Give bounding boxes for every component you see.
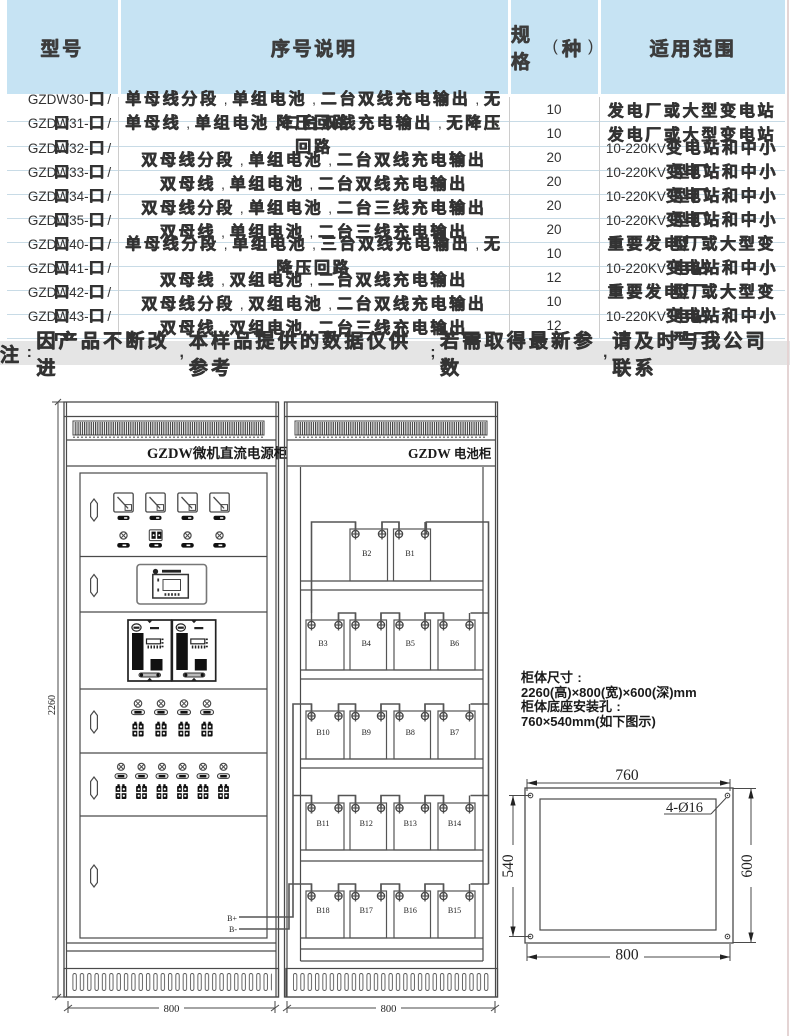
- svg-text:600: 600: [739, 854, 756, 878]
- svg-text:540: 540: [500, 854, 517, 878]
- svg-text:760: 760: [615, 767, 639, 784]
- svg-text:800: 800: [615, 947, 639, 964]
